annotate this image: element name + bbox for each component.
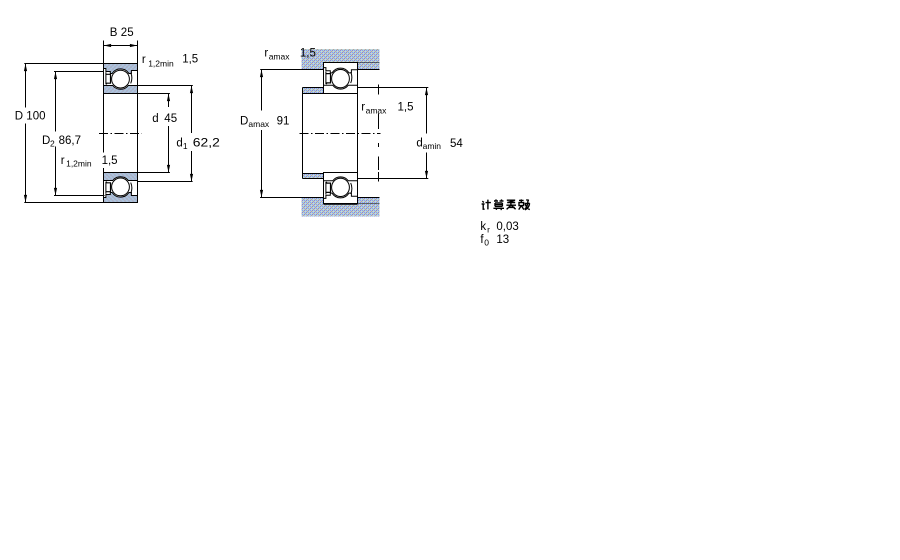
- svg-text:d: d: [176, 137, 182, 149]
- svg-text:1,2min: 1,2min: [66, 159, 92, 169]
- svg-text:amax: amax: [248, 119, 270, 129]
- svg-text:54: 54: [450, 138, 463, 150]
- svg-text:25: 25: [121, 27, 134, 39]
- svg-text:r: r: [61, 155, 65, 167]
- svg-text:91: 91: [277, 115, 290, 127]
- svg-text:r: r: [487, 224, 490, 234]
- svg-text:r: r: [142, 54, 146, 66]
- svg-text:k: k: [480, 221, 486, 233]
- svg-text:1: 1: [183, 141, 188, 151]
- svg-text:0: 0: [484, 238, 489, 248]
- svg-text:amax: amax: [269, 52, 291, 62]
- svg-text:13: 13: [496, 234, 509, 246]
- svg-text:1,5: 1,5: [300, 47, 316, 59]
- svg-text:62,2: 62,2: [193, 137, 220, 149]
- svg-text:1,5: 1,5: [398, 101, 414, 113]
- svg-text:D: D: [15, 110, 23, 122]
- svg-text:d: d: [152, 113, 158, 125]
- svg-text:45: 45: [164, 113, 177, 125]
- svg-text:amin: amin: [423, 141, 442, 151]
- svg-text:B: B: [110, 27, 118, 39]
- svg-text:1,2min: 1,2min: [148, 58, 174, 68]
- svg-text:0,03: 0,03: [496, 221, 518, 233]
- svg-text:1,5: 1,5: [102, 155, 118, 167]
- svg-text:1,5: 1,5: [182, 54, 198, 66]
- svg-text:2: 2: [50, 139, 55, 149]
- svg-text:86,7: 86,7: [59, 135, 81, 147]
- svg-text:amax: amax: [366, 105, 388, 115]
- svg-text:100: 100: [26, 110, 45, 122]
- svg-text:D: D: [240, 115, 248, 127]
